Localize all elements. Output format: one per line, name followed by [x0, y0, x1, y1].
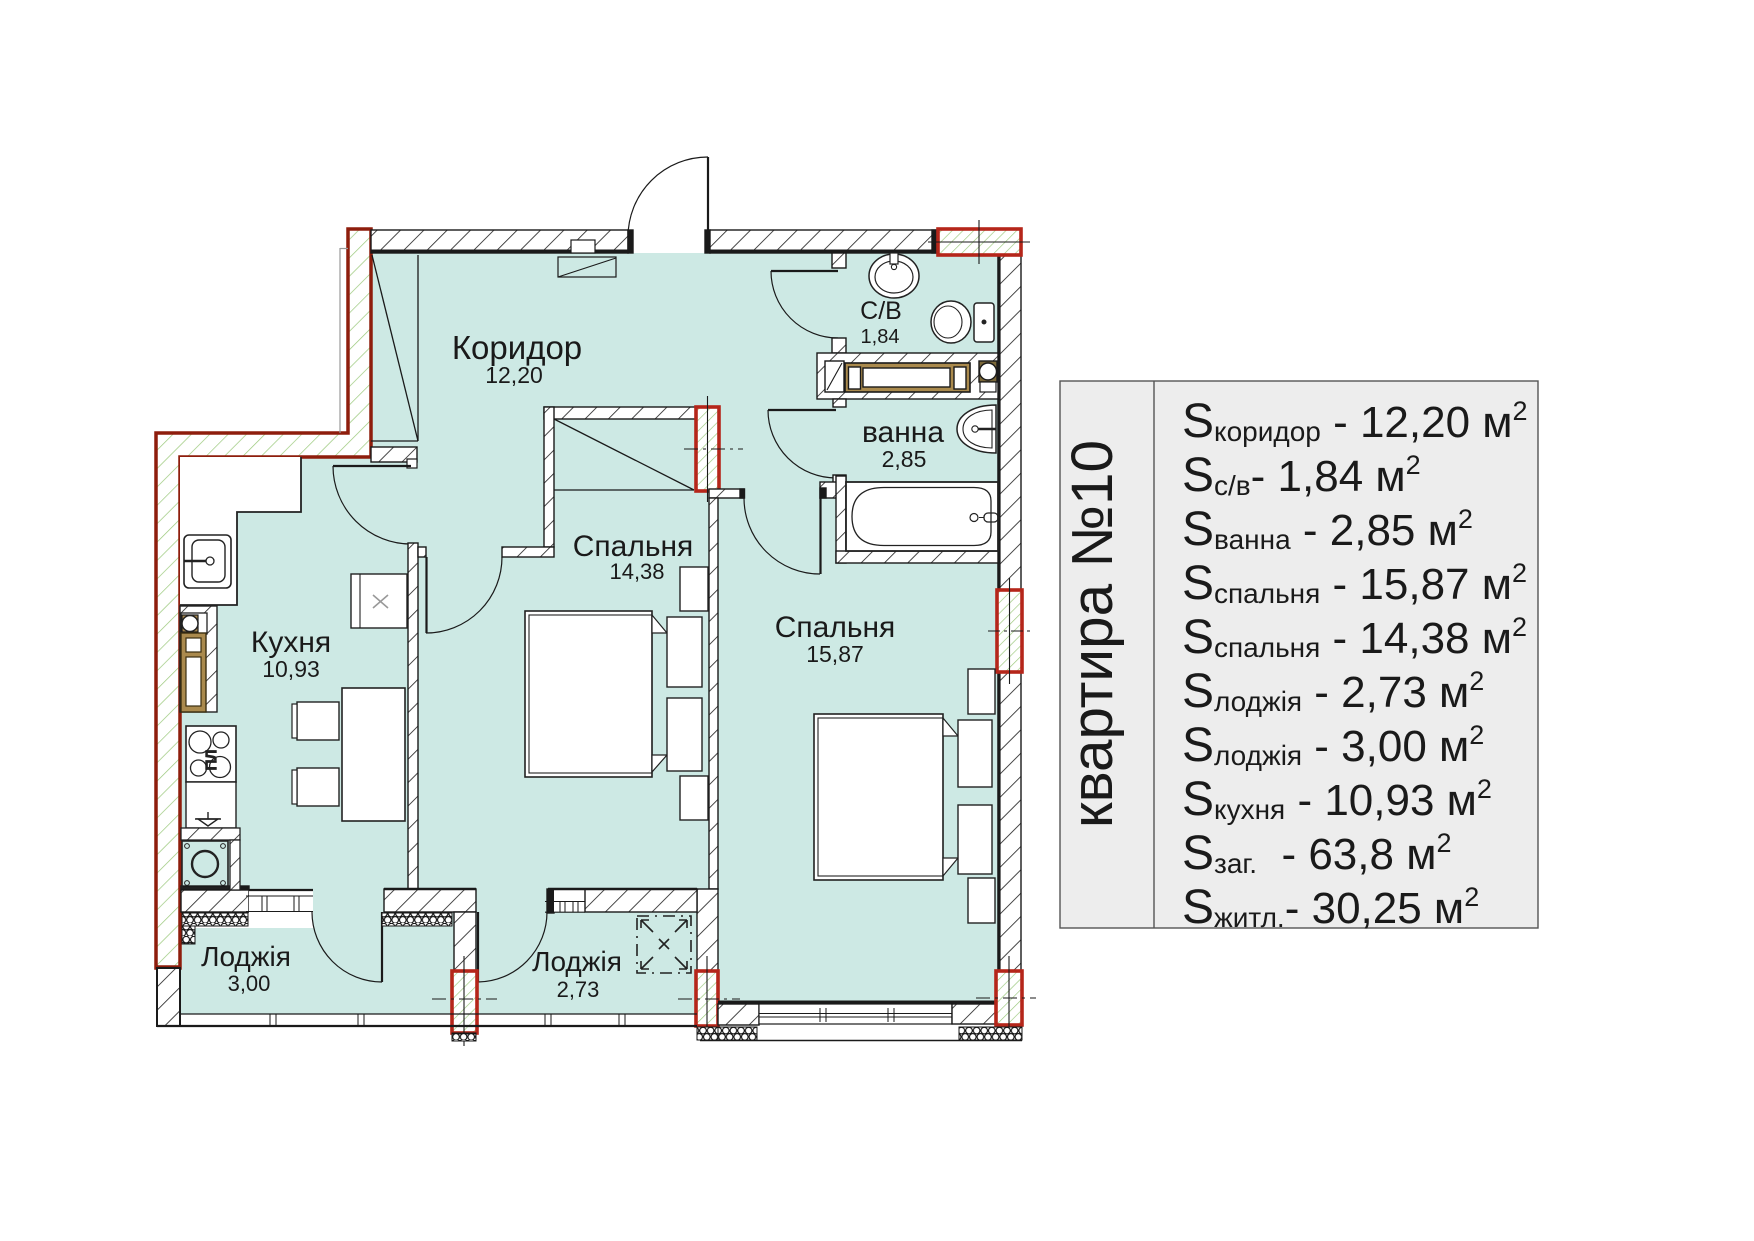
svg-text:ванна: ванна — [862, 416, 944, 449]
svg-text:С/В: С/В — [860, 297, 902, 325]
svg-text:3,00: 3,00 — [228, 971, 271, 996]
svg-text:2,85: 2,85 — [882, 446, 927, 472]
svg-text:12,20: 12,20 — [485, 362, 543, 388]
svg-text:14,38: 14,38 — [609, 559, 664, 584]
svg-text:Коридор: Коридор — [452, 329, 582, 366]
svg-text:2,73: 2,73 — [557, 977, 600, 1002]
svg-text:10,93: 10,93 — [262, 656, 320, 682]
svg-text:15,87: 15,87 — [806, 641, 864, 667]
svg-text:Лоджія: Лоджія — [532, 946, 622, 977]
svg-text:ПЛ: ПЛ — [203, 750, 220, 771]
svg-text:1,84: 1,84 — [861, 326, 900, 348]
svg-text:Лоджія: Лоджія — [201, 941, 291, 972]
svg-text:Кухня: Кухня — [251, 626, 331, 659]
svg-text:Спальня: Спальня — [775, 611, 896, 644]
svg-text:квартира №10: квартира №10 — [1060, 440, 1125, 828]
